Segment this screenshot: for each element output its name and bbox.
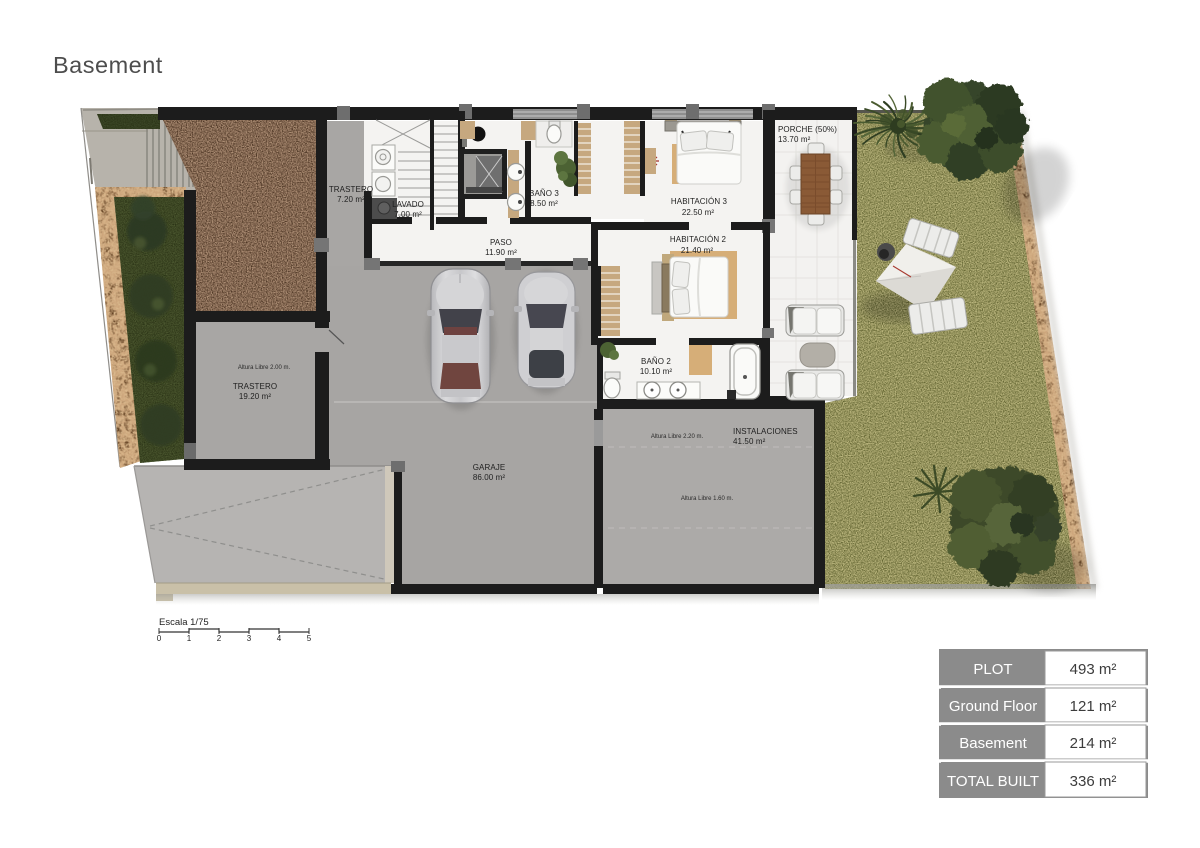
- svg-text:TRASTERO: TRASTERO: [233, 382, 277, 391]
- svg-text:HABITACIÓN 3: HABITACIÓN 3: [671, 197, 728, 206]
- svg-text:Basement: Basement: [53, 52, 163, 78]
- svg-text:BAÑO 3: BAÑO 3: [529, 189, 559, 198]
- svg-text:Basement: Basement: [959, 735, 1027, 752]
- svg-text:GARAJE: GARAJE: [473, 463, 506, 472]
- svg-text:493 m²: 493 m²: [1070, 661, 1117, 678]
- svg-text:10.10 m²: 10.10 m²: [640, 367, 673, 376]
- svg-text:Altura Libre 2.20 m.: Altura Libre 2.20 m.: [651, 434, 704, 440]
- svg-text:8.50 m²: 8.50 m²: [530, 199, 558, 208]
- svg-text:336 m²: 336 m²: [1070, 773, 1117, 790]
- svg-text:4: 4: [277, 634, 282, 643]
- svg-text:INSTALACIONES: INSTALACIONES: [733, 427, 798, 436]
- svg-text:Escala 1/75: Escala 1/75: [159, 617, 209, 628]
- svg-text:BAÑO 2: BAÑO 2: [641, 357, 671, 366]
- svg-text:22.50 m²: 22.50 m²: [682, 208, 715, 217]
- svg-text:7.20 m²: 7.20 m²: [337, 195, 365, 204]
- svg-text:19.20 m²: 19.20 m²: [239, 392, 272, 401]
- svg-text:11.90 m²: 11.90 m²: [485, 248, 517, 257]
- svg-text:TOTAL BUILT: TOTAL BUILT: [947, 773, 1039, 790]
- svg-text:Altura Libre 1.60 m.: Altura Libre 1.60 m.: [681, 496, 734, 502]
- svg-text:214 m²: 214 m²: [1070, 735, 1117, 752]
- svg-text:LAVADO: LAVADO: [392, 200, 424, 209]
- svg-text:86.00 m²: 86.00 m²: [473, 473, 506, 482]
- svg-text:0: 0: [157, 634, 162, 643]
- svg-text:121 m²: 121 m²: [1070, 698, 1117, 715]
- svg-text:Ground Floor: Ground Floor: [949, 698, 1037, 715]
- svg-text:5: 5: [307, 634, 312, 643]
- svg-text:1: 1: [187, 634, 192, 643]
- svg-text:2: 2: [217, 634, 222, 643]
- svg-text:21.40 m²: 21.40 m²: [681, 246, 714, 255]
- svg-text:PORCHE (50%): PORCHE (50%): [778, 125, 837, 134]
- svg-text:PLOT: PLOT: [973, 661, 1012, 678]
- svg-text:13.70 m²: 13.70 m²: [778, 135, 811, 144]
- svg-text:41.50 m²: 41.50 m²: [733, 437, 766, 446]
- svg-text:PASO: PASO: [490, 238, 512, 247]
- svg-text:TRASTERO: TRASTERO: [329, 185, 373, 194]
- svg-text:3: 3: [247, 634, 252, 643]
- svg-text:Altura Libre 2.00 m.: Altura Libre 2.00 m.: [238, 365, 291, 371]
- svg-text:HABITACIÓN 2: HABITACIÓN 2: [670, 235, 727, 244]
- svg-text:7.00 m²: 7.00 m²: [394, 210, 422, 219]
